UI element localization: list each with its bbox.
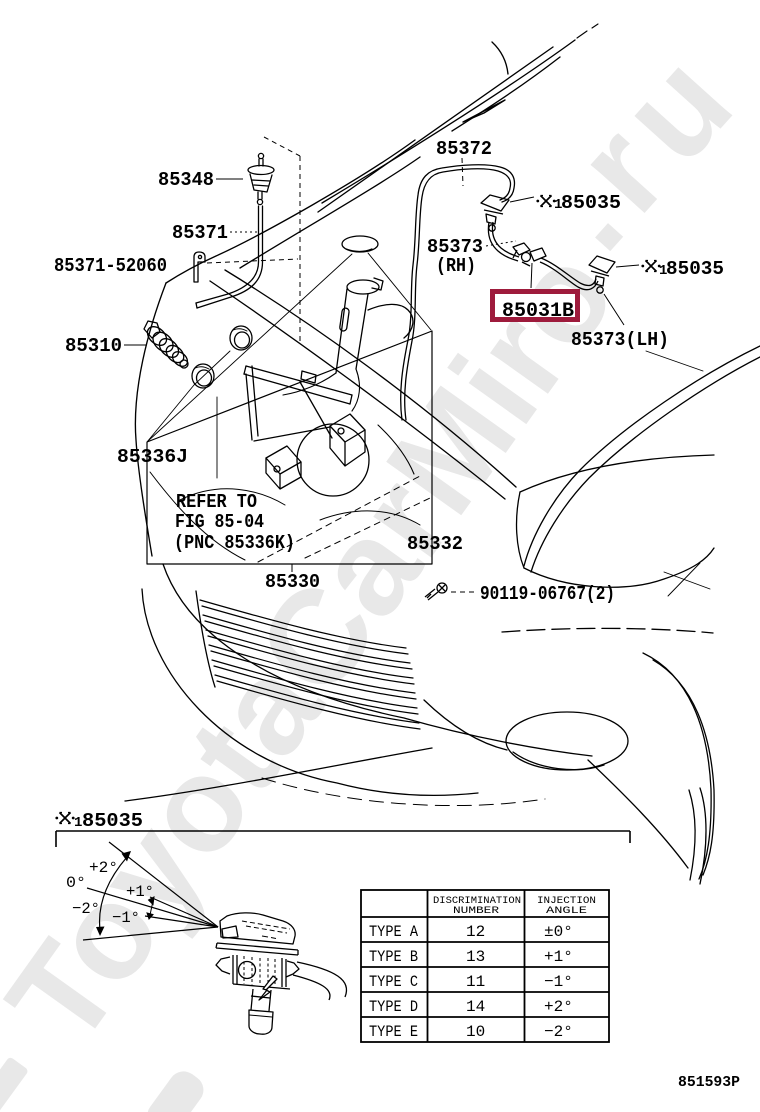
- svg-text:13: 13: [466, 948, 485, 966]
- svg-text:−2°: −2°: [544, 1023, 573, 1041]
- svg-text:85371: 85371: [172, 222, 228, 244]
- svg-text:TYPE A: TYPE A: [369, 923, 418, 941]
- svg-text:−2°: −2°: [72, 900, 100, 918]
- svg-text:.ru: .ru: [513, 17, 760, 278]
- svg-text:85035: 85035: [666, 258, 724, 280]
- svg-text:+2°: +2°: [544, 998, 573, 1016]
- svg-text:14: 14: [466, 998, 485, 1016]
- svg-text:85336J: 85336J: [117, 446, 188, 468]
- svg-text:+2°: +2°: [89, 859, 118, 877]
- svg-text:±0°: ±0°: [544, 923, 573, 941]
- svg-text:85035: 85035: [82, 810, 143, 832]
- svg-text:TYPE C: TYPE C: [369, 973, 418, 991]
- svg-text:TYPE D: TYPE D: [369, 998, 418, 1016]
- svg-text:+1°: +1°: [544, 948, 573, 966]
- svg-text:85372: 85372: [436, 138, 492, 160]
- svg-text:ANGLE: ANGLE: [546, 905, 587, 917]
- svg-text:TYPE E: TYPE E: [369, 1023, 418, 1041]
- svg-text:85332: 85332: [407, 533, 463, 555]
- svg-text:85348: 85348: [158, 169, 214, 191]
- svg-text:85330: 85330: [265, 571, 320, 593]
- svg-text:10: 10: [466, 1023, 485, 1041]
- svg-text:90119-06767(2): 90119-06767(2): [480, 583, 615, 605]
- svg-text:85031B: 85031B: [502, 300, 574, 323]
- svg-text:11: 11: [466, 973, 485, 991]
- svg-text:−1°: −1°: [112, 909, 140, 927]
- svg-text:FIG 85-04: FIG 85-04: [175, 511, 264, 533]
- svg-text:0°: 0°: [66, 874, 86, 892]
- svg-text:85373(LH): 85373(LH): [571, 329, 669, 351]
- svg-text:(RH): (RH): [436, 255, 476, 277]
- svg-text:TYPE B: TYPE B: [369, 948, 418, 966]
- svg-text:85310: 85310: [65, 335, 122, 357]
- svg-text:12: 12: [466, 923, 485, 941]
- svg-text:REFER TO: REFER TO: [176, 491, 257, 513]
- svg-text:−1°: −1°: [544, 973, 573, 991]
- svg-text:85371-52060: 85371-52060: [54, 255, 167, 277]
- svg-text:85035: 85035: [561, 192, 621, 214]
- svg-text:(PNC 85336K): (PNC 85336K): [174, 532, 295, 554]
- svg-text:+1°: +1°: [126, 883, 154, 901]
- svg-text:NUMBER: NUMBER: [453, 905, 500, 917]
- svg-text:851593P: 851593P: [678, 1074, 740, 1091]
